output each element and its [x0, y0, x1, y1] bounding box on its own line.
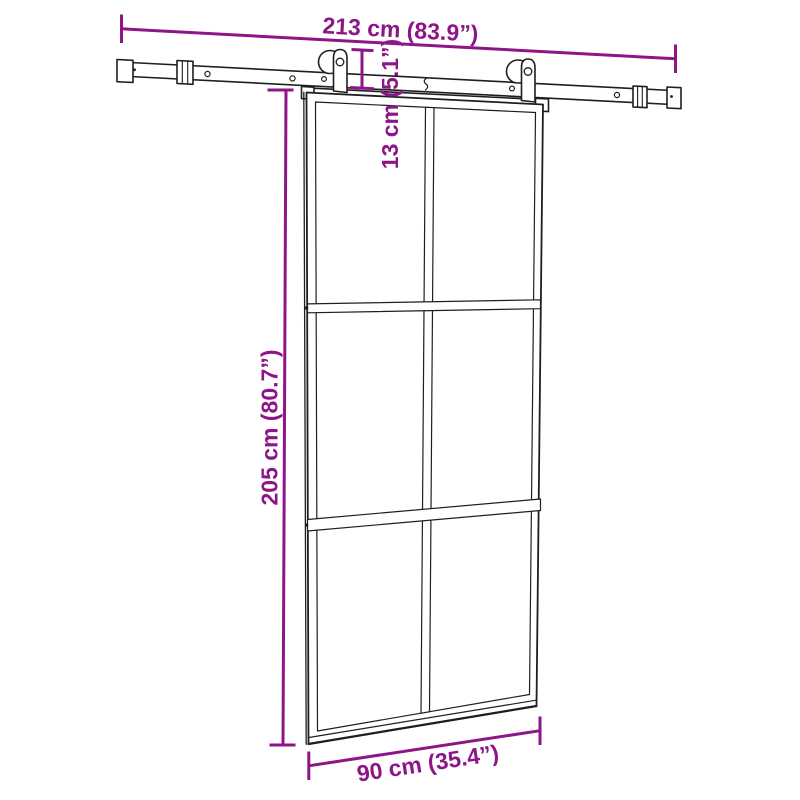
dimension-label-door-height: 205 cm (80.7”) [257, 350, 283, 506]
diagram-svg: 213 cm (83.9”) 13 cm (5.1”) 205 cm (80.7… [0, 0, 800, 800]
rail-screw-hole [290, 76, 295, 81]
dimension-label-hardware-height: 13 cm (5.1”) [377, 39, 403, 169]
rail-screw-hole [205, 71, 210, 76]
roller-hub-bolt [336, 58, 344, 66]
cap-bolt-dot [670, 95, 673, 98]
dim-line [283, 90, 286, 745]
door-slab-edge-left [304, 92, 306, 744]
rail-end-cap-left [117, 60, 133, 83]
rail-screw-hole [614, 92, 619, 97]
rail-coupler-left [177, 61, 193, 85]
anti-jump-pin [510, 86, 515, 91]
cap-bolt-dot [133, 68, 136, 71]
rail-end-cap-right [667, 87, 681, 109]
roller-strap [522, 59, 536, 102]
joint-dot [305, 306, 308, 309]
roller-hub-bolt [524, 68, 532, 76]
joint-dot [305, 523, 308, 526]
roller-strap [334, 50, 348, 93]
anti-jump-pin [322, 77, 327, 82]
product-dimension-diagram: 213 cm (83.9”) 13 cm (5.1”) 205 cm (80.7… [0, 0, 800, 800]
rail-coupler-right [633, 86, 647, 108]
glass-door [304, 92, 543, 744]
